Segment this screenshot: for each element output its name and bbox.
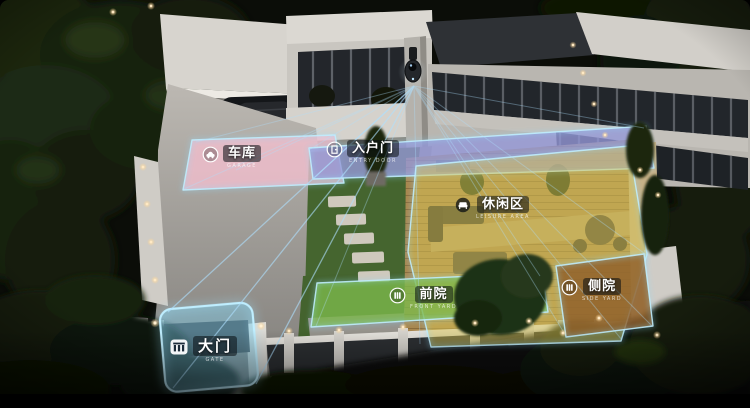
smart-home-coverage-view: 车库 GARAGE 入户门 ENTRY DOOR 休闲区 LEISURE ARE…	[0, 0, 750, 408]
door-icon	[326, 141, 343, 158]
zone-label-subtext: SIDE YARD	[582, 296, 622, 302]
zone-label-subtext: GATE	[205, 357, 224, 363]
zone-label-text: 车库	[223, 145, 261, 162]
letterbox-bar	[0, 394, 750, 408]
label-side-yard[interactable]: 侧院 SIDE YARD	[561, 278, 622, 302]
label-gate[interactable]: 大门 GATE	[169, 336, 237, 363]
zone-label-subtext: ENTRY DOOR	[349, 158, 397, 164]
fence-icon	[561, 279, 578, 296]
label-front-yard[interactable]: 前院 FRONT YARD	[389, 286, 457, 310]
zone-label-subtext: LEISURE AREA	[476, 214, 530, 220]
label-entry-door[interactable]: 入户门 ENTRY DOOR	[326, 140, 399, 164]
yard-3d-render	[0, 0, 750, 408]
zone-label-text: 入户门	[347, 140, 399, 157]
car-icon	[202, 146, 219, 163]
label-leisure-area[interactable]: 休闲区 LEISURE AREA	[455, 196, 530, 220]
zone-label-subtext: FRONT YARD	[410, 304, 457, 310]
gate-icon	[169, 337, 189, 357]
fence-icon	[389, 287, 406, 304]
label-garage[interactable]: 车库 GARAGE	[202, 145, 261, 169]
zone-label-text: 休闲区	[477, 196, 529, 213]
sofa-icon	[455, 197, 472, 214]
zone-label-text: 前院	[415, 286, 453, 303]
zone-label-subtext: GARAGE	[227, 163, 257, 169]
zone-label-text: 大门	[193, 336, 237, 356]
zone-label-text: 侧院	[583, 278, 621, 295]
